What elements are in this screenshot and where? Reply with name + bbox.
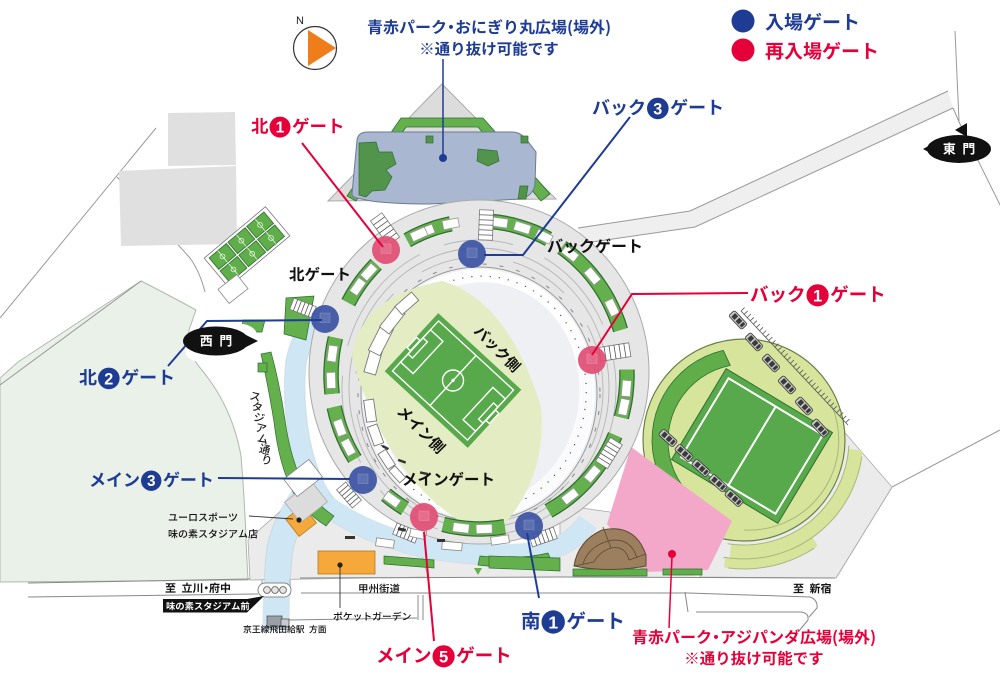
svg-text:1: 1	[813, 286, 822, 305]
svg-text:1: 1	[276, 120, 285, 137]
svg-text:3: 3	[653, 100, 662, 118]
svg-text:3: 3	[147, 473, 156, 490]
svg-text:5: 5	[439, 647, 448, 666]
svg-text:2: 2	[104, 370, 113, 388]
svg-text:N: N	[296, 15, 304, 27]
svg-text:1: 1	[548, 612, 558, 632]
